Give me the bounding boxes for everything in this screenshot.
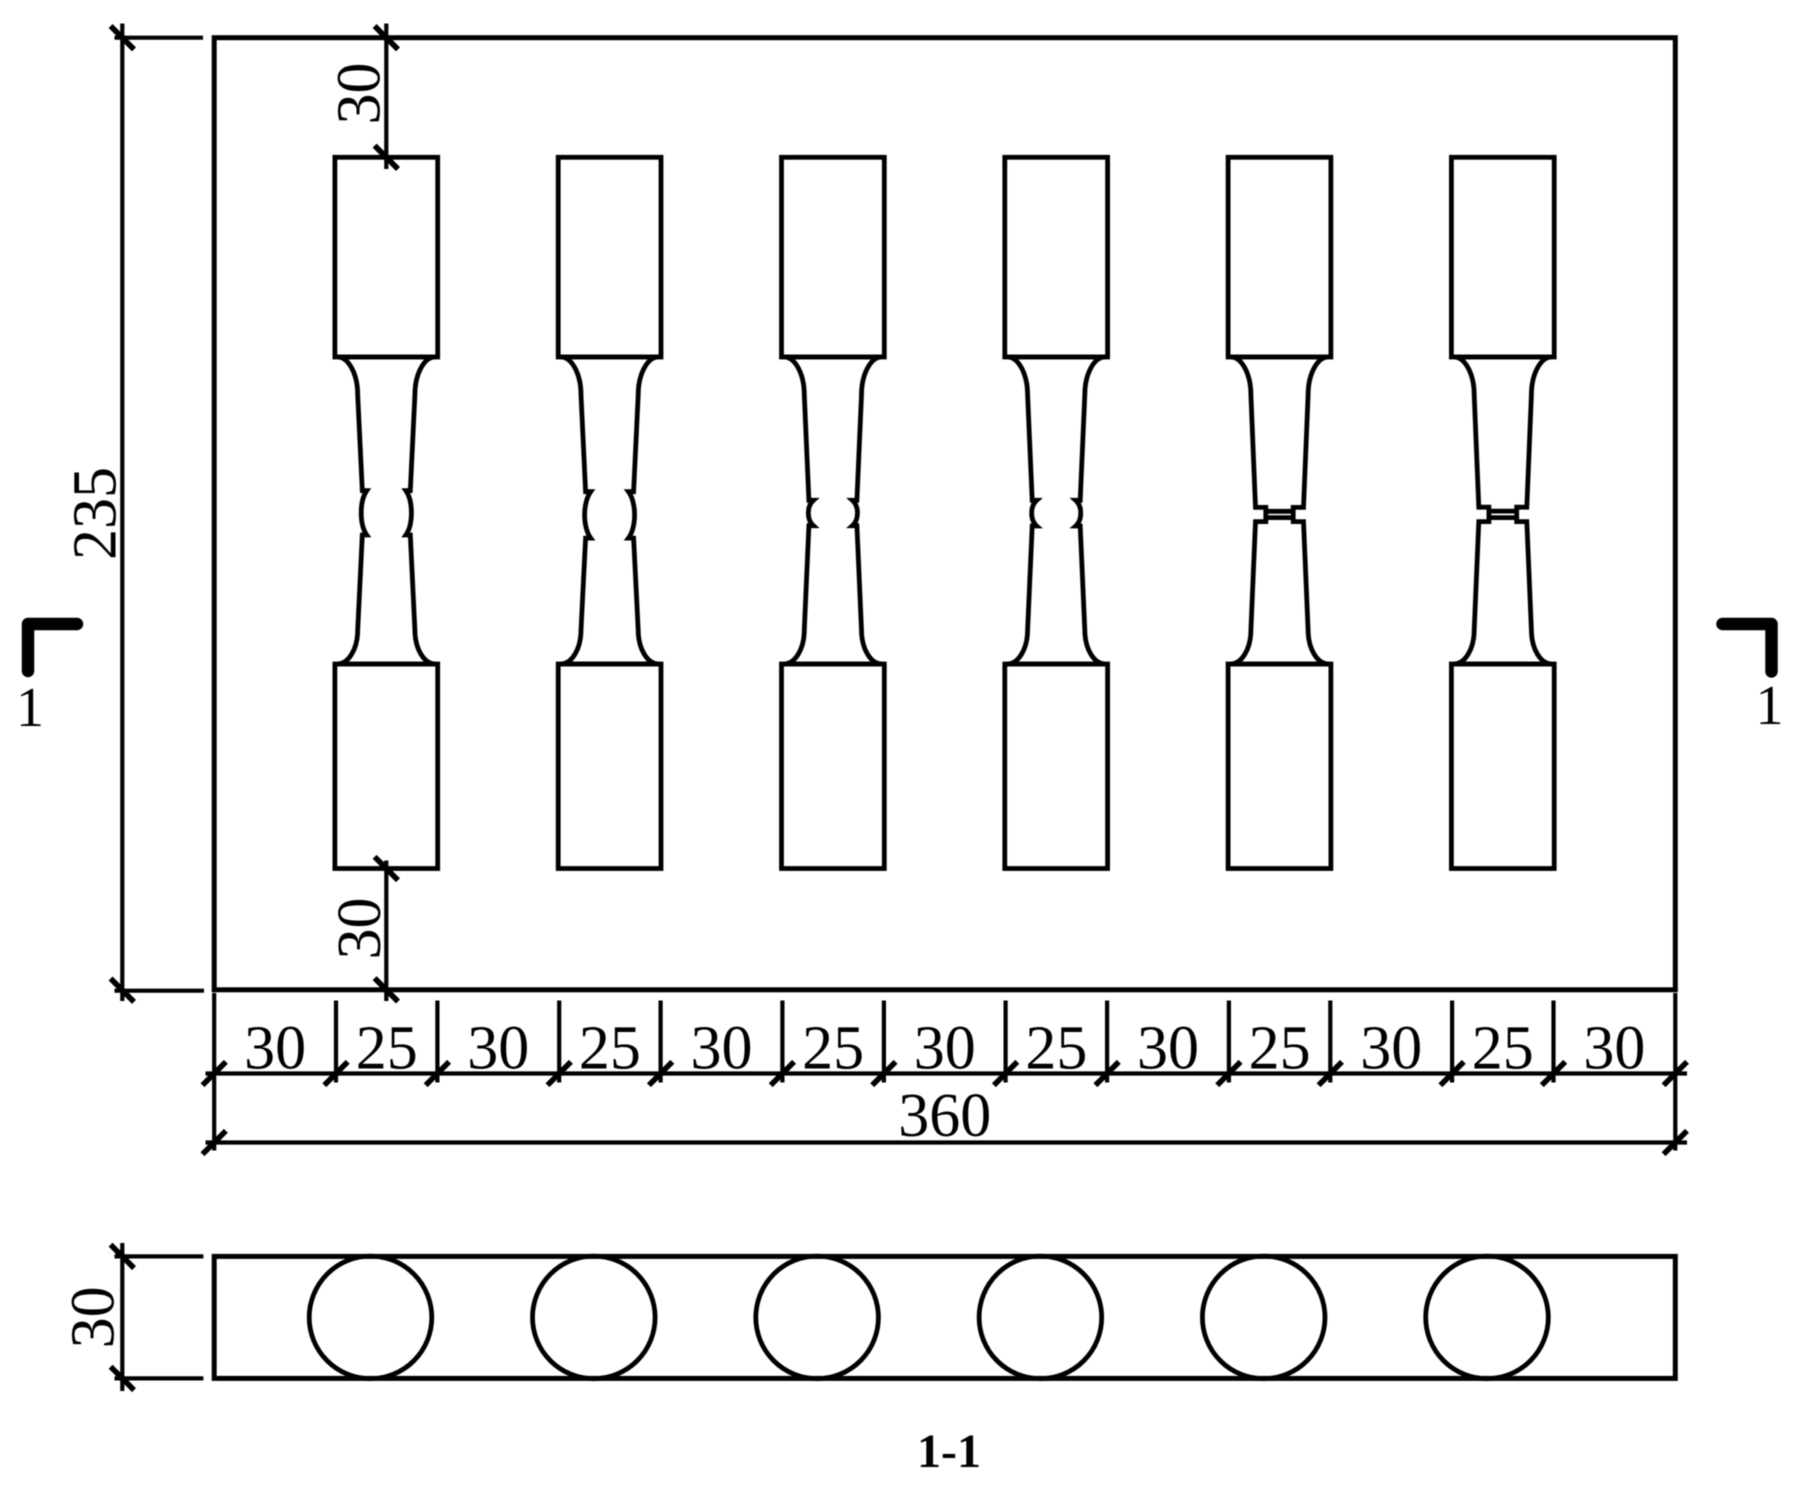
svg-text:30: 30 bbox=[326, 63, 394, 125]
svg-text:30: 30 bbox=[1137, 1015, 1199, 1083]
svg-text:235: 235 bbox=[62, 467, 130, 560]
svg-text:30: 30 bbox=[914, 1015, 976, 1083]
svg-text:25: 25 bbox=[1472, 1015, 1534, 1083]
svg-text:30: 30 bbox=[244, 1015, 306, 1083]
svg-text:25: 25 bbox=[1025, 1015, 1087, 1083]
svg-text:30: 30 bbox=[326, 898, 394, 960]
svg-text:360: 360 bbox=[898, 1082, 991, 1150]
svg-text:1-1: 1-1 bbox=[917, 1425, 981, 1478]
svg-text:1: 1 bbox=[1756, 675, 1784, 737]
svg-text:25: 25 bbox=[802, 1015, 864, 1083]
svg-text:1: 1 bbox=[16, 677, 44, 739]
svg-text:30: 30 bbox=[691, 1015, 753, 1083]
svg-text:30: 30 bbox=[467, 1015, 529, 1083]
svg-text:25: 25 bbox=[1249, 1015, 1311, 1083]
svg-text:30: 30 bbox=[1360, 1015, 1422, 1083]
svg-text:30: 30 bbox=[1583, 1015, 1645, 1083]
svg-text:25: 25 bbox=[356, 1015, 418, 1083]
svg-text:25: 25 bbox=[579, 1015, 641, 1083]
svg-text:30: 30 bbox=[60, 1286, 128, 1348]
